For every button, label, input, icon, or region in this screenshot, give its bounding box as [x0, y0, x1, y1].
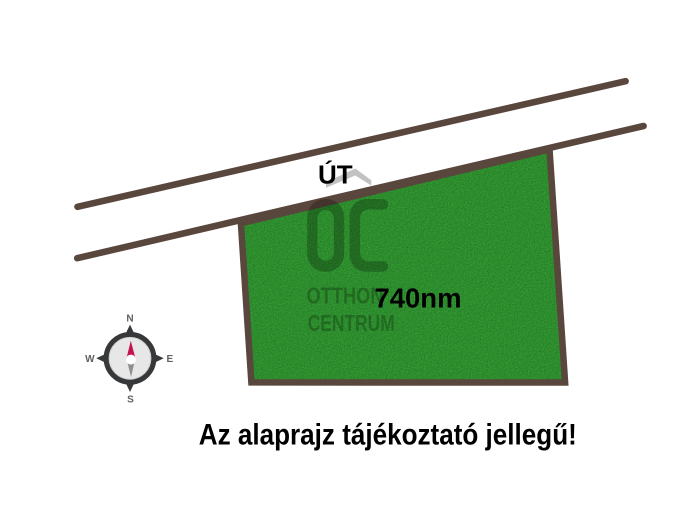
svg-text:W: W — [85, 354, 95, 365]
svg-text:N: N — [126, 314, 133, 325]
svg-text:OTTHON: OTTHON — [307, 283, 384, 309]
svg-text:740nm: 740nm — [375, 283, 462, 314]
svg-text:ÚT: ÚT — [318, 160, 353, 190]
svg-text:S: S — [127, 395, 134, 406]
svg-text:E: E — [166, 354, 173, 365]
svg-text:Az alaprajz tájékoztató jelleg: Az alaprajz tájékoztató jellegű! — [199, 419, 577, 452]
